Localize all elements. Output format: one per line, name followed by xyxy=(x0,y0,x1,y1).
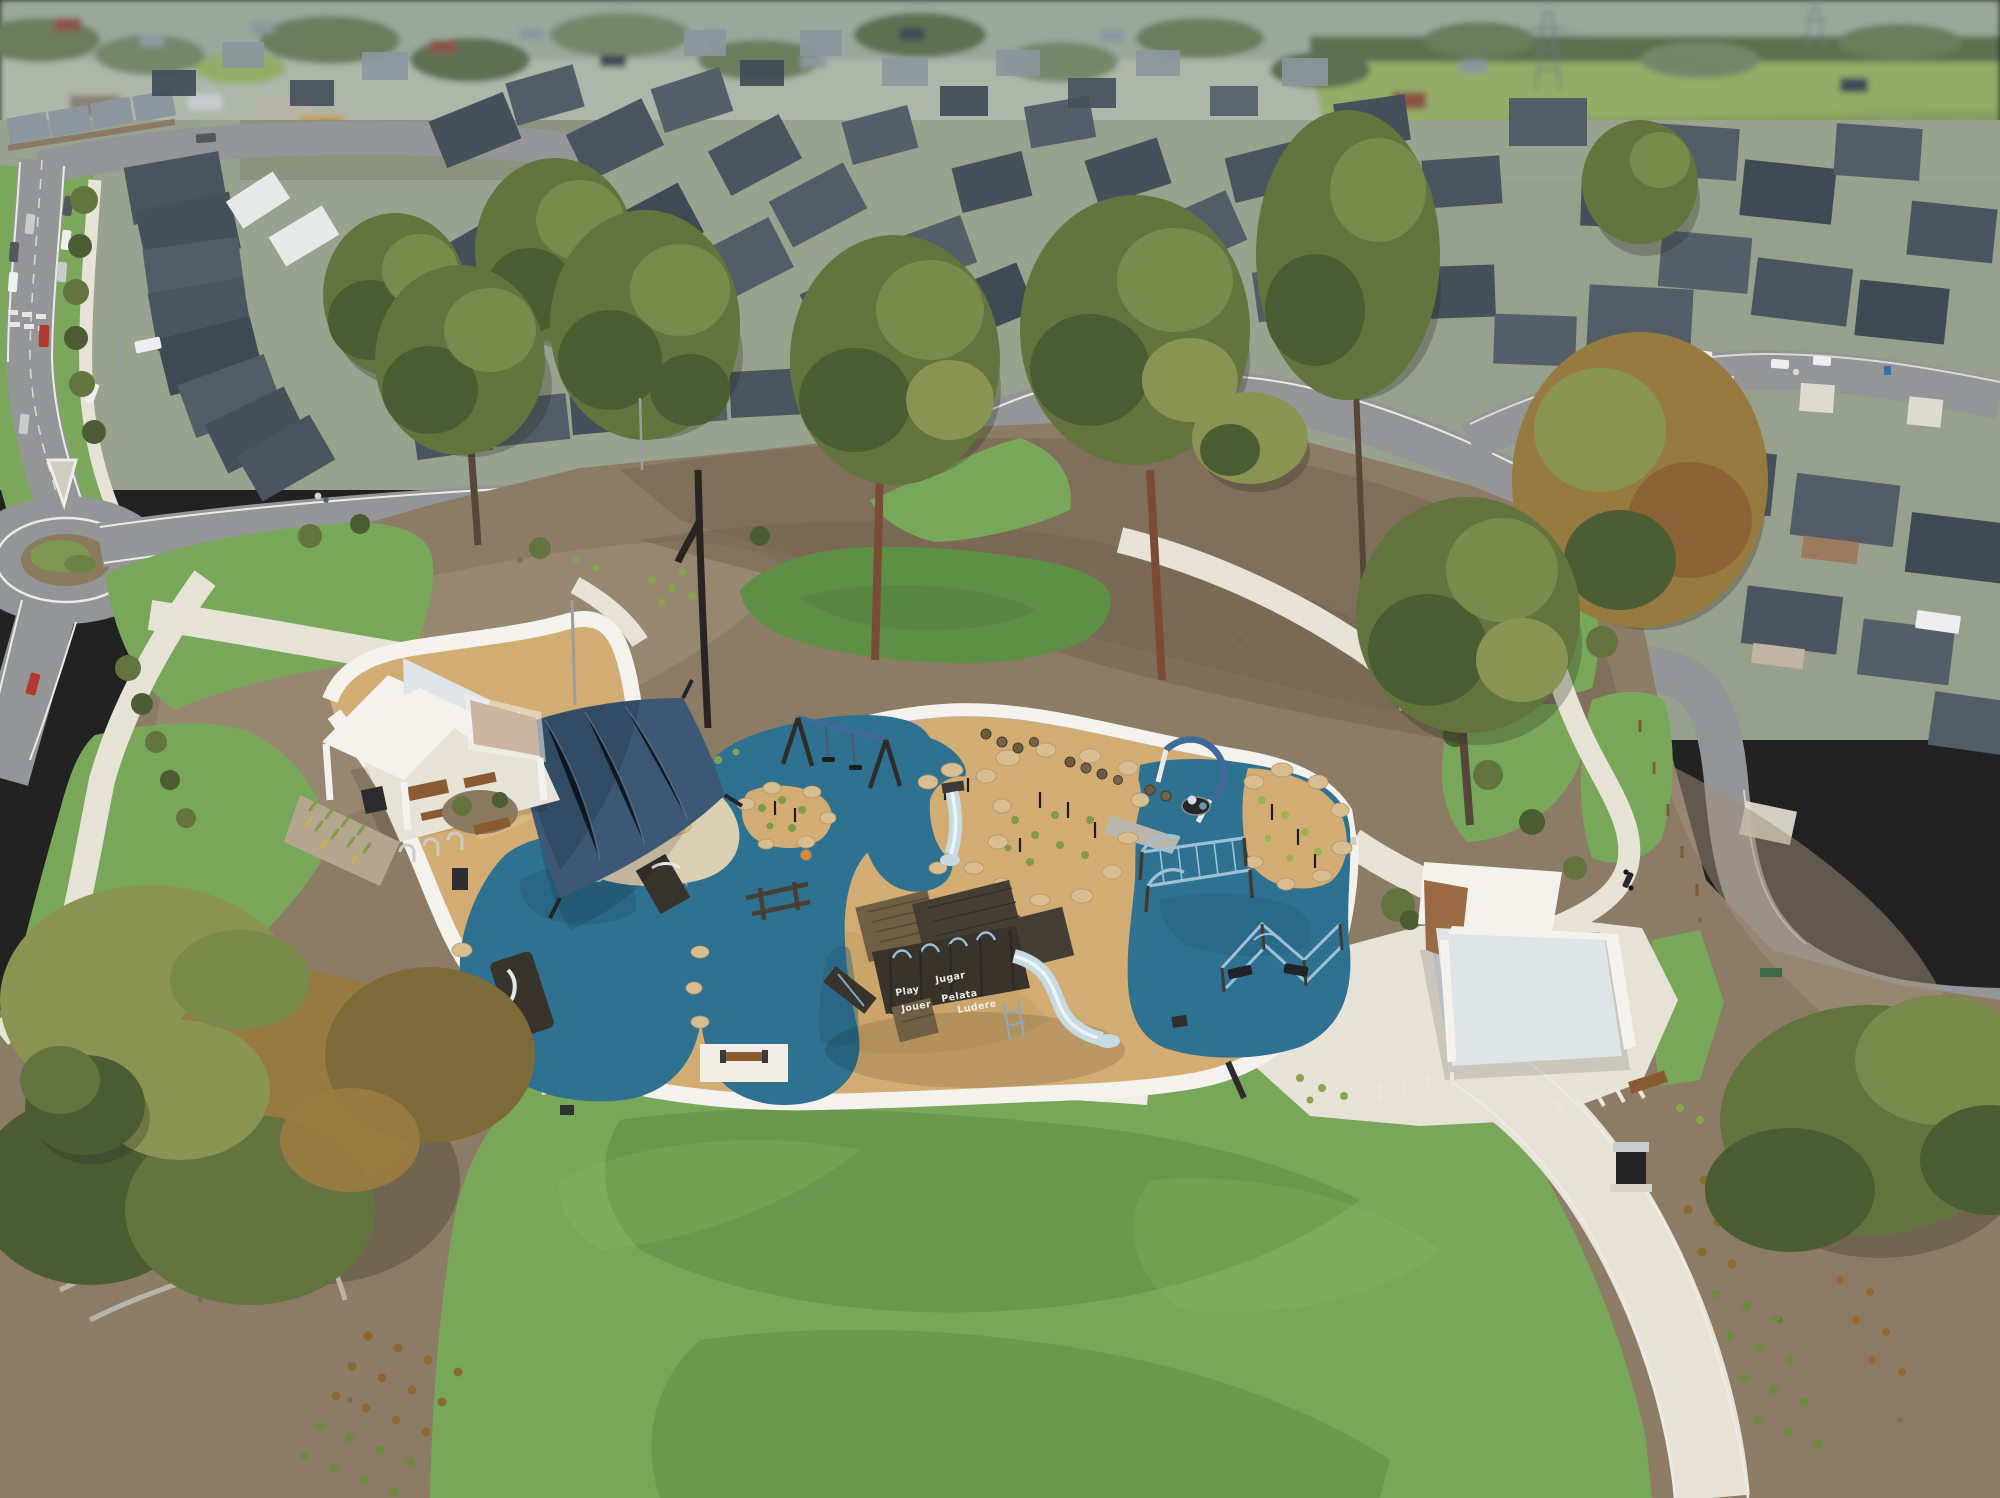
person xyxy=(1188,796,1197,805)
car xyxy=(9,242,19,263)
playground-sign xyxy=(1171,1015,1187,1028)
person xyxy=(323,497,329,503)
car xyxy=(1813,356,1832,366)
car xyxy=(196,133,217,143)
litter-bin: litter bin xyxy=(1610,1142,1652,1192)
car xyxy=(1771,359,1790,369)
person xyxy=(1793,369,1799,375)
playground-sign xyxy=(560,1105,574,1115)
car xyxy=(19,414,30,435)
wheelie-bin xyxy=(1884,366,1891,375)
park-sign xyxy=(1760,968,1782,977)
drinking-fountain xyxy=(452,868,468,890)
spinner xyxy=(801,850,812,861)
car xyxy=(39,325,50,347)
aerial-photo: Aerial drone photo of a residential esta… xyxy=(0,0,2000,1498)
scene-svg: Aerial drone photo of a residential esta… xyxy=(0,0,2000,1498)
person xyxy=(1199,802,1207,810)
car xyxy=(57,262,67,283)
person xyxy=(315,493,322,500)
park-bench: park bench xyxy=(700,1044,788,1082)
car xyxy=(8,272,18,293)
